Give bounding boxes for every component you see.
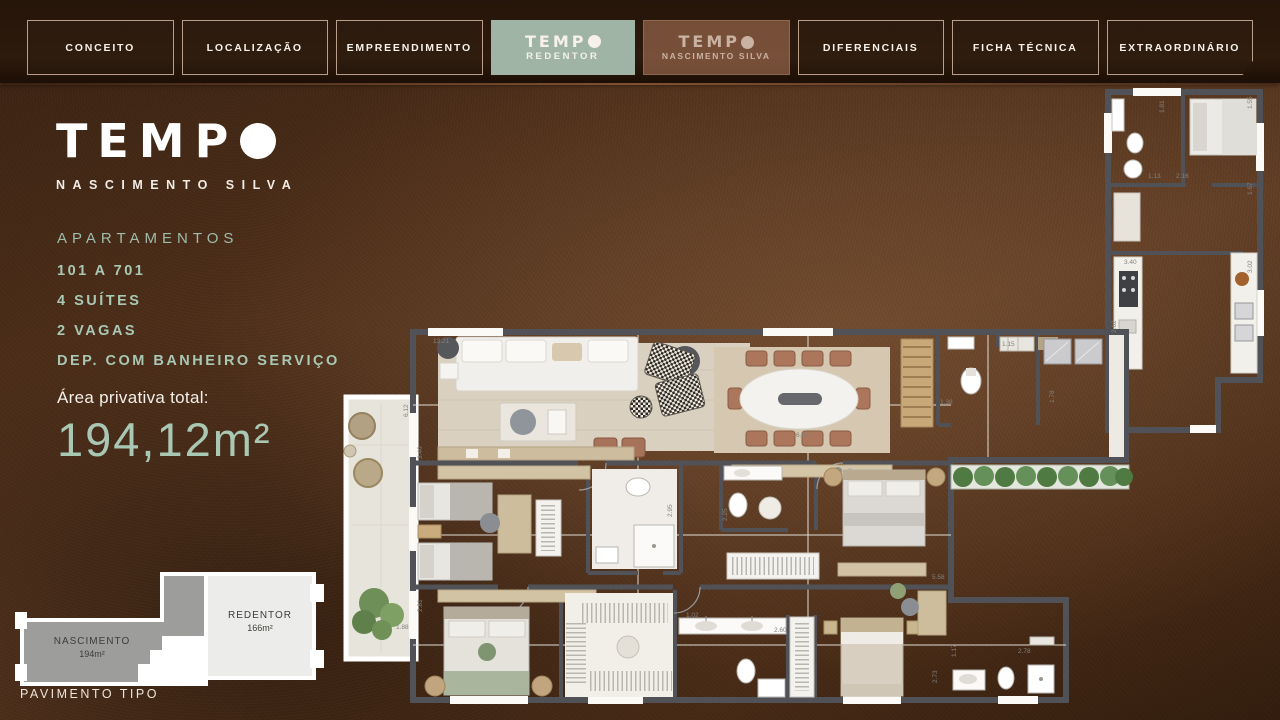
- dimension-label: 3.40: [1124, 259, 1137, 266]
- detail-service: DEP. COM BANHEIRO SERVIÇO: [57, 353, 340, 369]
- laundry: [1044, 339, 1102, 364]
- dimension-label: 6.12: [403, 404, 410, 417]
- tab-empreendimento[interactable]: EMPREENDIMENTO: [336, 20, 483, 75]
- tab-label: LOCALIZAÇÃO: [207, 42, 303, 54]
- tempo-logo-subtitle: NASCIMENTO SILVA: [56, 178, 298, 192]
- dimension-label: 2.73: [932, 670, 939, 683]
- nightstand: [927, 468, 945, 486]
- tab-extraordinario[interactable]: EXTRAORDINÁRIO: [1107, 20, 1254, 75]
- dimension-label: 2.78: [1018, 648, 1031, 655]
- closet-strip: [790, 617, 814, 697]
- detail-suites: 4 SUÍTES: [57, 293, 340, 309]
- living-room: [437, 337, 750, 460]
- key-plan-notch: [15, 664, 27, 681]
- tab-label: NASCIMENTO SILVA: [662, 51, 771, 61]
- wardrobe: [438, 466, 590, 479]
- lavabo: [948, 337, 981, 394]
- nav-tabs: CONCEITO LOCALIZAÇÃO EMPREENDIMENTO TEMP…: [27, 20, 1253, 75]
- tab-diferenciais[interactable]: DIFERENCIAIS: [798, 20, 945, 75]
- nightstand: [824, 468, 842, 486]
- walk-in-closet: [565, 593, 673, 697]
- key-plan-notch: [15, 612, 27, 629]
- master-bathroom: [679, 616, 786, 697]
- nightstand: [418, 525, 441, 538]
- tab-localizacao[interactable]: LOCALIZAÇÃO: [182, 20, 329, 75]
- dimension-label: 2.81: [417, 599, 424, 612]
- tab-conceito[interactable]: CONCEITO: [27, 20, 174, 75]
- dimension-label: 1.38: [940, 399, 953, 406]
- dining-room: [714, 347, 892, 477]
- dimension-label: 1.17: [951, 644, 958, 657]
- desk-chair: [480, 513, 500, 533]
- pouf: [425, 676, 445, 696]
- sink-counter: [724, 466, 782, 480]
- key-plan-right-area: 166m²: [247, 623, 273, 633]
- dimension-label: 6.54: [796, 432, 809, 439]
- dimension-label: 1.55: [1247, 96, 1254, 109]
- key-plan-notch: [310, 584, 324, 602]
- key-plan-caption: PAVIMENTO TIPO: [20, 687, 159, 701]
- cabinet: [1114, 193, 1140, 241]
- toilet: [737, 659, 755, 683]
- top-navigation-bar: CONCEITO LOCALIZAÇÃO EMPREENDIMENTO TEMP…: [0, 0, 1280, 83]
- private-area: Área privativa total: 194,12m²: [57, 388, 272, 467]
- key-plan-left-area: 194m²: [79, 649, 105, 659]
- dimension-label: 1.13: [1148, 173, 1161, 180]
- tab-label: DIFERENCIAIS: [823, 42, 919, 54]
- toilet: [729, 493, 747, 517]
- desk: [918, 591, 946, 635]
- bench: [838, 563, 926, 576]
- pouf: [354, 459, 382, 487]
- single-bed: [418, 483, 492, 520]
- key-plan-notch: [310, 650, 324, 668]
- tempo-logo: TEMP NASCIMENTO SILVA: [56, 118, 298, 192]
- ottoman: [630, 396, 652, 418]
- plant: [890, 583, 906, 599]
- bedroom-two-beds: [418, 466, 590, 580]
- dimension-label: 13.21: [433, 338, 450, 345]
- tab-tempo-nascimento-silva[interactable]: TEMP NASCIMENTO SILVA: [643, 20, 790, 75]
- suite-three-bed: [841, 618, 903, 696]
- side-table: [344, 445, 356, 457]
- apartment-details: APARTAMENTOS 101 A 701 4 SUÍTES 2 VAGAS …: [57, 230, 340, 383]
- master-bed: [444, 607, 529, 695]
- shower: [758, 679, 785, 697]
- nightstand: [824, 621, 837, 634]
- tempo-logo-icon: TEMP: [525, 34, 601, 50]
- floor-plan: 13.216.123.402.811.886.542.952.255.581.0…: [338, 85, 1268, 717]
- tab-tempo-redentor[interactable]: TEMP REDENTOR: [491, 20, 636, 75]
- dimension-label: 2.62: [1111, 320, 1118, 333]
- dimension-label: 1.78: [1049, 390, 1056, 403]
- tab-label: FICHA TÉCNICA: [973, 42, 1078, 54]
- dimension-label: 1.15: [1002, 341, 1015, 348]
- tab-label: EMPREENDIMENTO: [347, 42, 472, 54]
- detail-parking: 2 VAGAS: [57, 323, 340, 339]
- tempo-logo-dot-icon: [240, 123, 276, 159]
- desk-chair: [901, 598, 919, 616]
- key-plan-right-name: REDENTOR: [228, 610, 292, 621]
- single-bed: [418, 543, 492, 580]
- hedge-planter: [951, 465, 1133, 489]
- pouf: [349, 413, 375, 439]
- suite-two-bed: [843, 470, 925, 546]
- dimension-label: 5.58: [932, 574, 945, 581]
- dimension-label: 2.60: [774, 627, 787, 634]
- kitchen: [1114, 253, 1257, 433]
- dimension-label: 2.25: [722, 508, 729, 521]
- key-plan-left-name: NASCIMENTO: [54, 636, 131, 647]
- tab-label: REDENTOR: [526, 51, 599, 62]
- dimension-label: 1.67: [1247, 182, 1254, 195]
- dimension-label: 1.02: [686, 612, 699, 619]
- service-bathroom: [1112, 99, 1143, 178]
- tempo-logo-icon: TEMP: [679, 34, 755, 50]
- tab-label: CONCEITO: [65, 42, 135, 54]
- suite-two: [724, 466, 945, 579]
- suite-two-bathroom: [724, 466, 782, 519]
- decor: [1235, 272, 1249, 286]
- pouf: [532, 676, 552, 696]
- toilet: [998, 667, 1014, 689]
- bathroom-middle: [592, 469, 677, 569]
- balcony: [344, 397, 416, 659]
- cooktop: [1119, 271, 1138, 307]
- sink: [596, 547, 618, 563]
- master-suite: [425, 590, 673, 697]
- dimension-label: 3.02: [1247, 260, 1254, 273]
- apartments-heading: APARTAMENTOS: [57, 230, 340, 247]
- suite-three: [824, 583, 946, 696]
- private-area-value: 194,12m²: [57, 412, 272, 467]
- wine-rack: [901, 339, 933, 427]
- oven: [1235, 303, 1253, 319]
- desk: [498, 495, 531, 553]
- oven: [1235, 325, 1253, 341]
- dimension-label: 2.16: [1176, 173, 1189, 180]
- toilet: [626, 478, 650, 496]
- tab-ficha-tecnica[interactable]: FICHA TÉCNICA: [952, 20, 1099, 75]
- detail-units: 101 A 701: [57, 263, 340, 279]
- dimension-label: 3.40: [417, 446, 424, 459]
- dimension-label: 1.81: [1159, 100, 1166, 113]
- tab-label: EXTRAORDINÁRIO: [1119, 42, 1240, 54]
- tempo-logo-word: TEMP: [56, 118, 298, 164]
- private-area-label: Área privativa total:: [57, 388, 272, 408]
- dimension-label: 1.88: [396, 624, 409, 631]
- dimension-label: 2.95: [667, 504, 674, 517]
- key-plan: NASCIMENTO 194m² REDENTOR 166m²: [14, 560, 332, 688]
